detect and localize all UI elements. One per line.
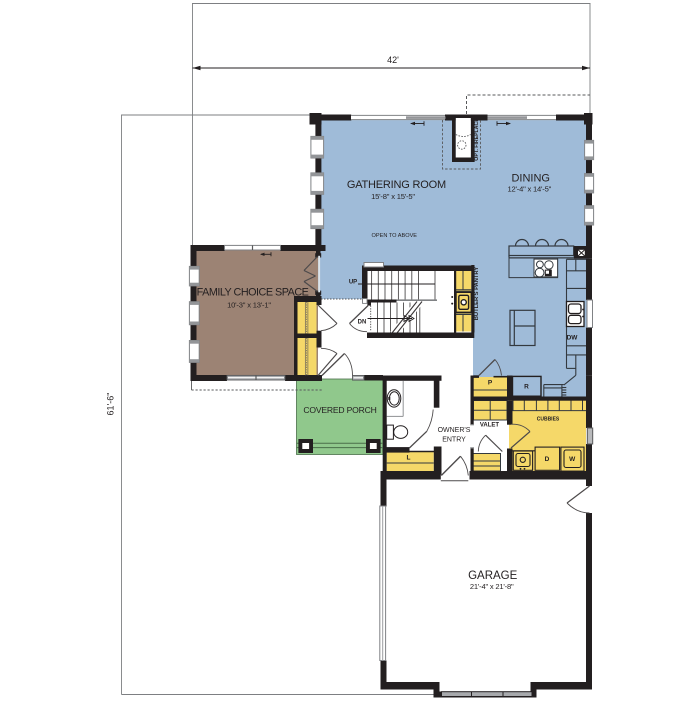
svg-text:P: P bbox=[488, 380, 493, 387]
svg-text:W: W bbox=[569, 456, 576, 463]
svg-text:OWNER'S: OWNER'S bbox=[438, 427, 471, 434]
svg-text:DN: DN bbox=[358, 320, 367, 326]
svg-text:21'-4" x 21'-8": 21'-4" x 21'-8" bbox=[470, 582, 514, 591]
svg-text:10'-3" x 13'-1": 10'-3" x 13'-1" bbox=[227, 301, 271, 310]
svg-text:ENTRY: ENTRY bbox=[442, 437, 466, 444]
svg-text:VALET: VALET bbox=[480, 423, 500, 429]
svg-text:OPT. FIREPLACE: OPT. FIREPLACE bbox=[474, 118, 480, 161]
svg-text:FAMILY CHOICE SPACE: FAMILY CHOICE SPACE bbox=[197, 287, 309, 299]
svg-text:UP: UP bbox=[349, 280, 357, 286]
svg-text:R: R bbox=[524, 384, 529, 391]
svg-text:GATHERING ROOM: GATHERING ROOM bbox=[347, 179, 446, 191]
svg-text:DW: DW bbox=[567, 335, 579, 342]
svg-text:DINING: DINING bbox=[511, 173, 550, 185]
svg-text:L: L bbox=[407, 455, 411, 462]
svg-text:OPEN TO ABOVE: OPEN TO ABOVE bbox=[372, 233, 418, 239]
svg-text:COVERED PORCH: COVERED PORCH bbox=[303, 405, 376, 415]
svg-text:15'-8" x 15'-5": 15'-8" x 15'-5" bbox=[371, 192, 415, 201]
svg-text:GARAGE: GARAGE bbox=[468, 570, 518, 582]
svg-text:12'-4" x 14'-5": 12'-4" x 14'-5" bbox=[507, 185, 551, 194]
svg-text:BUTLER'S PANTRY: BUTLER'S PANTRY bbox=[474, 267, 480, 321]
svg-text:42': 42' bbox=[387, 55, 399, 65]
svg-text:61'-6": 61'-6" bbox=[106, 393, 116, 416]
svg-text:CUBBIES: CUBBIES bbox=[537, 417, 560, 423]
svg-text:D: D bbox=[545, 456, 550, 463]
